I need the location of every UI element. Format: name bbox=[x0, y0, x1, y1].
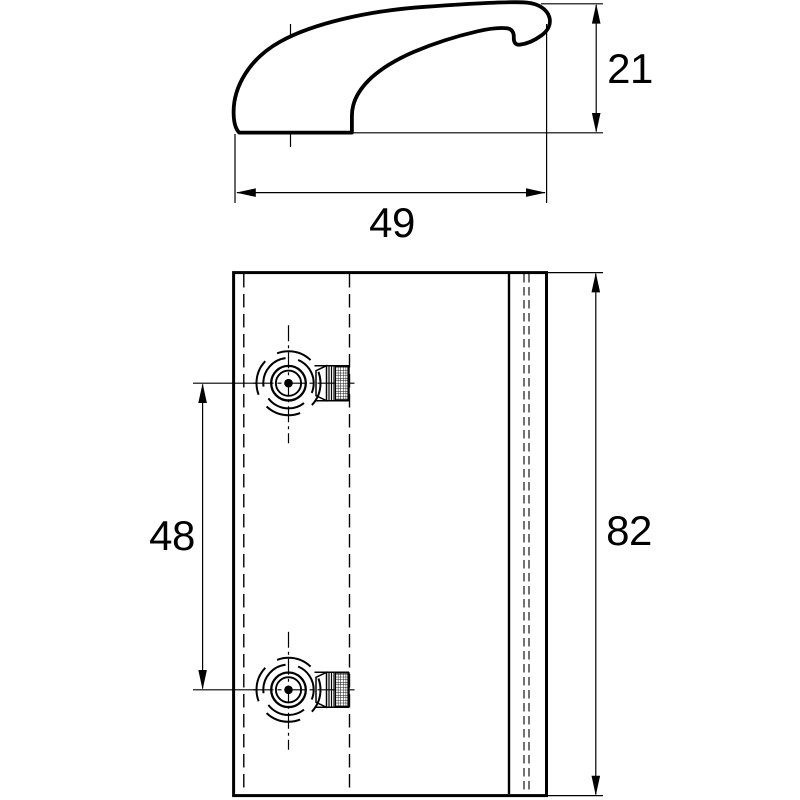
plate-outline bbox=[234, 273, 547, 796]
technical-drawing: 21 49 48 bbox=[0, 0, 800, 800]
dimension-label-hole-spacing: 48 bbox=[149, 512, 195, 559]
drawing-canvas: 21 49 48 bbox=[0, 0, 800, 800]
dimension-label-handle-height: 21 bbox=[607, 45, 653, 92]
plate-front-view bbox=[234, 273, 547, 796]
dimension-label-plate-height: 82 bbox=[606, 507, 652, 554]
dimension-label-handle-length: 49 bbox=[369, 199, 415, 246]
